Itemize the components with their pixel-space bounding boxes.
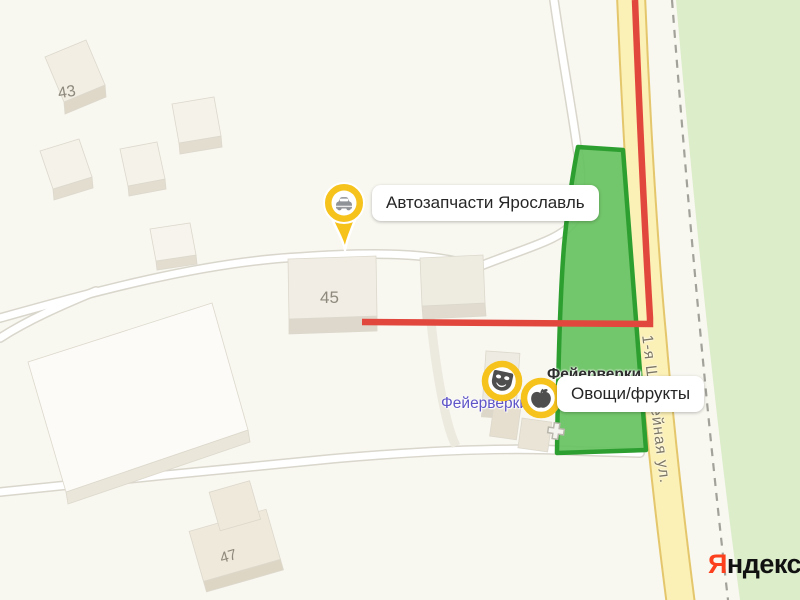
building-small-1 — [40, 139, 93, 200]
auto-parts-balloon-text: Автозапчасти Ярославль — [386, 193, 585, 212]
produce-balloon[interactable]: Овощи/фрукты — [557, 376, 704, 412]
yandex-logo-rest: ндекс — [727, 549, 800, 579]
building-45-number: 45 — [320, 288, 339, 308]
map-view[interactable]: 43 45 47 1-я Шоссейная ул. Фейерверки Фе… — [0, 0, 800, 600]
map-canvas[interactable] — [0, 0, 800, 600]
building-small-3 — [172, 97, 222, 154]
yandex-logo-first-letter: Я — [708, 549, 727, 579]
produce-balloon-text: Овощи/фрукты — [571, 384, 690, 403]
building-45b — [420, 255, 486, 319]
park-area — [676, 0, 800, 600]
building-small-4 — [150, 223, 197, 270]
auto-parts-balloon[interactable]: Автозапчасти Ярославль — [372, 185, 599, 221]
yandex-logo[interactable]: Яндекс — [708, 549, 800, 580]
building-47 — [180, 479, 283, 592]
buildings-layer — [28, 40, 552, 592]
building-43-number: 43 — [57, 83, 78, 104]
building-43 — [45, 40, 106, 114]
building-small-2 — [120, 142, 166, 196]
driveway — [430, 312, 456, 446]
plus-icon — [546, 421, 566, 441]
auto-parts-pin-marker[interactable] — [319, 182, 369, 258]
